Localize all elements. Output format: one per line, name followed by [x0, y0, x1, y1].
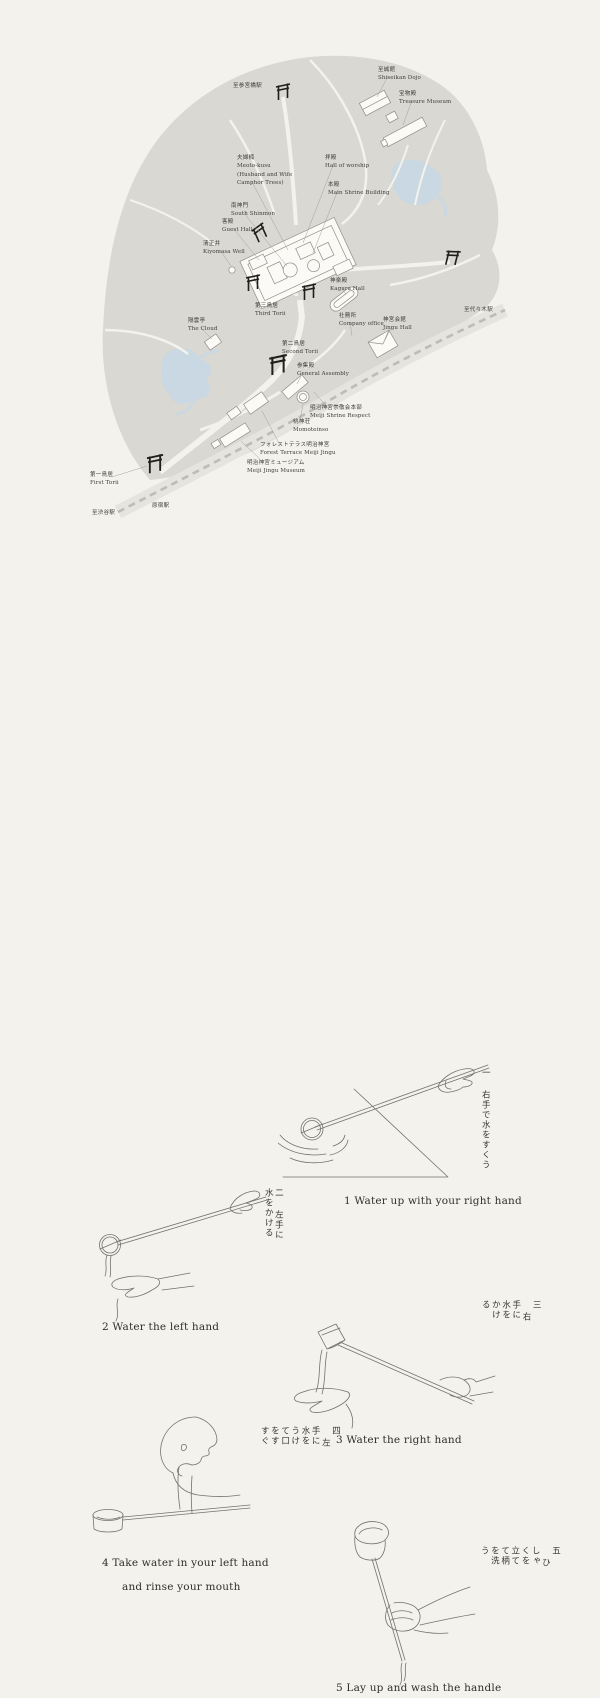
- map-label-south-shinmon: 南神門South Shinmon: [231, 202, 275, 219]
- map-label-kiyomasa-well: 清正井Kiyomasa Well: [203, 240, 245, 257]
- map-label-jp: 本殿: [328, 181, 390, 189]
- map-label-jp: フォレストテラス明治神宮: [260, 441, 336, 449]
- step-1-illustration: [278, 1063, 496, 1191]
- map-label-the-cloud: 隔雲亭The Cloud: [188, 317, 217, 334]
- step-2-vertical-text: 二左手に水をかける: [263, 1188, 283, 1243]
- map-label-guest-hall: 客殿Guest Hall: [222, 218, 253, 235]
- shrine-precinct-map: 至参宮橋駅至誠館Shiseikan Dojo宝物殿Treasure Museum…: [0, 0, 600, 530]
- map-label-jp: 至参宮橋駅: [233, 82, 262, 90]
- map-label-en: Main Shrine Building: [328, 189, 390, 197]
- map-label-jp: 至代々木駅: [464, 306, 493, 314]
- map-label-jp: 客殿: [222, 218, 253, 226]
- map-label-jp: 社務所: [339, 312, 384, 320]
- step-3-number: 三: [531, 1300, 541, 1310]
- step-1-caption: 1 Water up with your right hand: [344, 1196, 522, 1207]
- map-label-jp: 宝物殿: [399, 90, 451, 98]
- map-label-en: Forest Terrace Meiji Jingu: [260, 449, 336, 457]
- map-label-jp: 明治神宮崇敬会本部: [310, 404, 370, 412]
- map-label-third-torii: 第三鳥居Third Torii: [255, 302, 286, 319]
- map-labels-layer: 至参宮橋駅至誠館Shiseikan Dojo宝物殿Treasure Museum…: [0, 0, 600, 530]
- map-label-jp: 桃神荘: [293, 418, 328, 426]
- step-4-caption: 4 Take water in your left hand and rinse…: [102, 1558, 269, 1592]
- map-label-jp: 拝殿: [325, 154, 369, 162]
- step-1-vertical-text: 一右手で水をすくう: [480, 1068, 490, 1170]
- map-label-jp: 第一鳥居: [90, 471, 119, 479]
- map-label-company-office: 社務所Company office: [339, 312, 384, 329]
- map-label-kagura-hall: 神楽殿Kagura Hall: [330, 277, 365, 294]
- map-label-en: The Cloud: [188, 325, 217, 333]
- map-label-jp: 南神門: [231, 202, 275, 210]
- map-label-en: Momoteinso: [293, 426, 328, 434]
- step-5-jp-text: ひしゃくを立てて柄を洗う: [479, 1546, 550, 1568]
- map-label-en: First Torii: [90, 479, 119, 487]
- purification-steps: 一右手で水をすくう 1 Water up with your right han…: [0, 530, 600, 1243]
- map-label-en: Company office: [339, 320, 384, 328]
- map-label-meiji-jingu-museum: 明治神宮ミュージアムMeiji Jingu Museum: [247, 459, 305, 476]
- map-label-to-shibuya-station: 至渋谷駅: [92, 509, 115, 517]
- map-label-to-sangubashi-station: 至参宮橋駅: [233, 82, 262, 90]
- step-4-vertical-text: 四左手に水をうけて口をすすぐ: [259, 1426, 341, 1448]
- map-label-shiseikan-dojo: 至誠館Shiseikan Dojo: [378, 66, 421, 83]
- map-label-en: Camphor Trees): [237, 179, 292, 187]
- map-label-forest-terrace: フォレストテラス明治神宮Forest Terrace Meiji Jingu: [260, 441, 336, 458]
- map-label-meoto-kusu: 夫婦楠Meoto-kusu(Husband and WifeCamphor Tr…: [237, 154, 292, 187]
- step-2-illustration: [58, 1183, 273, 1323]
- map-label-en: General Assembly: [297, 370, 349, 378]
- step-3-illustration: [288, 1302, 503, 1437]
- map-label-harajuku-station: 原宿駅: [152, 502, 169, 510]
- map-label-en: Treasure Museum: [399, 98, 451, 106]
- map-label-first-torii: 第一鳥居First Torii: [90, 471, 119, 488]
- map-label-to-yoyogi-station: 至代々木駅: [464, 306, 493, 314]
- map-label-jp: 参集殿: [297, 362, 349, 370]
- map-label-general-assembly: 参集殿General Assembly: [297, 362, 349, 379]
- map-label-jp: 至渋谷駅: [92, 509, 115, 517]
- map-label-en: Hall of worship: [325, 162, 369, 170]
- map-label-jingu-hall: 神宮会館Jingu Hall: [383, 316, 412, 333]
- map-label-jp: 明治神宮ミュージアム: [247, 459, 305, 467]
- map-label-jp: 第三鳥居: [255, 302, 286, 310]
- map-label-jp: 原宿駅: [152, 502, 169, 510]
- map-label-jp: 隔雲亭: [188, 317, 217, 325]
- step-5-number: 五: [551, 1546, 561, 1556]
- map-label-jp: 神楽殿: [330, 277, 365, 285]
- step-2-caption: 2 Water the left hand: [102, 1322, 219, 1333]
- map-label-en: Meoto-kusu: [237, 162, 292, 170]
- map-label-en: Second Torii: [282, 348, 318, 356]
- map-label-jp: 第二鳥居: [282, 340, 318, 348]
- step-4-number: 四: [331, 1426, 341, 1436]
- step-5-vertical-text: 五ひしゃくを立てて柄を洗う: [479, 1546, 561, 1568]
- map-label-hall-of-worship: 拝殿Hall of worship: [325, 154, 369, 171]
- step-4-caption-line1: 4 Take water in your left hand: [102, 1557, 269, 1569]
- map-label-en: Jingu Hall: [383, 324, 412, 332]
- map-label-second-torii: 第二鳥居Second Torii: [282, 340, 318, 357]
- map-label-treasure-museum: 宝物殿Treasure Museum: [399, 90, 451, 107]
- step-4-caption-line2: and rinse your mouth: [102, 1582, 269, 1593]
- map-label-main-shrine-building: 本殿Main Shrine Building: [328, 181, 390, 198]
- map-label-en: Kiyomasa Well: [203, 248, 245, 256]
- map-label-jp: 神宮会館: [383, 316, 412, 324]
- map-label-en: (Husband and Wife: [237, 171, 292, 179]
- step-5-illustration: [330, 1513, 505, 1698]
- step-1-jp-text: 右手で水をすくう: [480, 1090, 490, 1170]
- step-1-number: 一: [480, 1068, 490, 1078]
- step-4-illustration: [78, 1413, 288, 1558]
- step-5-caption: 5 Lay up and wash the handle: [336, 1683, 501, 1694]
- map-label-en: Shiseikan Dojo: [378, 74, 421, 82]
- step-3-caption: 3 Water the right hand: [336, 1435, 462, 1446]
- map-label-momoteinso: 桃神荘Momoteinso: [293, 418, 328, 435]
- map-label-jp: 至誠館: [378, 66, 421, 74]
- map-label-en: Kagura Hall: [330, 285, 365, 293]
- map-label-jp: 夫婦楠: [237, 154, 292, 162]
- step-4-jp-text: 左手に水をうけて口をすすぐ: [259, 1426, 330, 1448]
- step-3-jp-text: 右手に水をかける: [480, 1300, 531, 1322]
- map-label-en: Meiji Jingu Museum: [247, 467, 305, 475]
- map-label-en: Guest Hall: [222, 226, 253, 234]
- step-2-number: 二: [273, 1188, 283, 1198]
- map-label-jp: 清正井: [203, 240, 245, 248]
- map-label-en: Third Torii: [255, 310, 286, 318]
- step-3-vertical-text: 三右手に水をかける: [480, 1300, 541, 1322]
